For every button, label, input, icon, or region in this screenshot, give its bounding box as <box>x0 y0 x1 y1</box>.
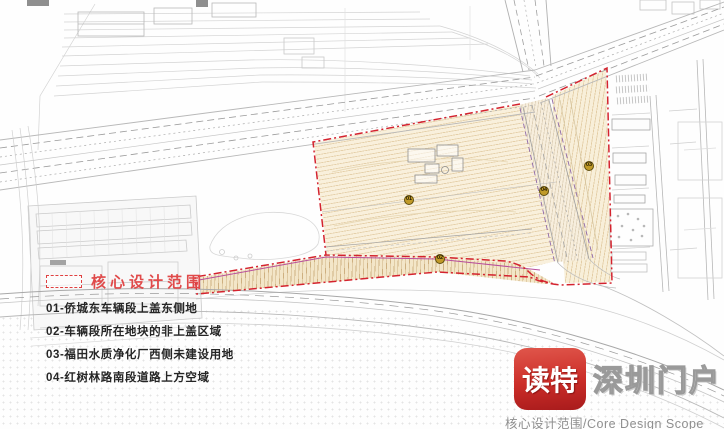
scope-marker-02: 02 <box>435 254 445 264</box>
shenzhen-portal-wordmark: 深圳门户 <box>593 356 721 400</box>
east-blocks <box>610 59 722 300</box>
north-road <box>505 0 551 72</box>
marker-04-label: 04 <box>541 188 547 194</box>
dute-app-logo: 读特 <box>514 348 586 410</box>
north-buildings <box>27 0 720 68</box>
hongshulin-road-lines <box>520 98 620 288</box>
scope-boundary-swatch <box>46 275 82 288</box>
scope-marker-04: 04 <box>539 186 549 196</box>
rail-yard <box>38 4 540 150</box>
dute-app-name: 读特 <box>522 359 578 399</box>
marker-02-label: 02 <box>437 256 443 262</box>
legend-item-02: 02-车辆段所在地块的非上盖区域 <box>46 321 234 344</box>
legend-header: 核心设计范围 <box>46 271 234 292</box>
legend-title: 核心设计范围 <box>91 271 205 292</box>
legend-item-03: 03-福田水质净化厂西侧未建设用地 <box>46 344 234 367</box>
marker-01-label: 01 <box>406 197 412 203</box>
scope-marker-03: 03 <box>584 161 594 171</box>
park-contours <box>210 212 319 260</box>
scope-marker-01: 01 <box>404 195 414 205</box>
legend-item-01: 01-侨城东车辆段上盖东侧地 <box>46 298 234 321</box>
marker-03-label: 03 <box>586 163 592 169</box>
legend: 核心设计范围 01-侨城东车辆段上盖东侧地 02-车辆段所在地块的非上盖区域 0… <box>46 271 234 390</box>
figure-caption: 核心设计范围/Core Design Scope <box>505 413 724 429</box>
watermark-row: 读特 深圳门户 <box>505 348 724 410</box>
site-plan-map: 01 02 03 04 核心设计范围 01-侨城东车辆段上盖东侧地 02-车辆段… <box>0 0 724 429</box>
legend-item-04: 04-红树林路南段道路上方空域 <box>46 367 234 390</box>
parcel-01-detail <box>322 145 556 251</box>
dute-watermark: 读特 深圳门户 核心设计范围/Core Design Scope <box>505 348 724 429</box>
